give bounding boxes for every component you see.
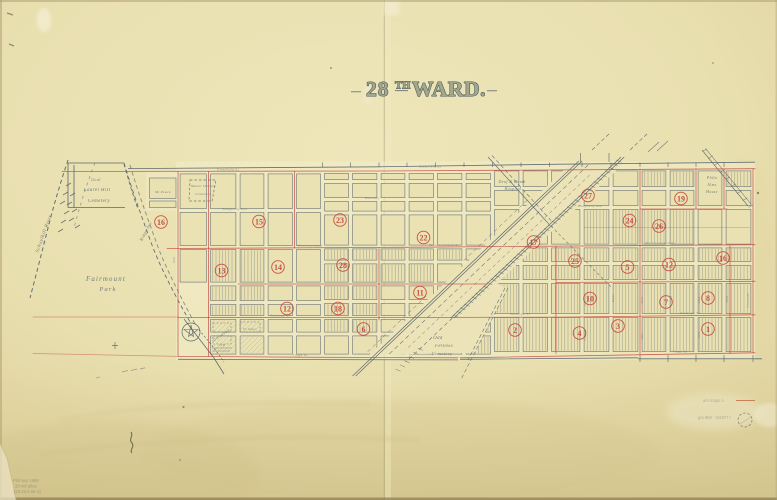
svg-text:Clearfield St: Clearfield St <box>217 168 239 172</box>
svg-text:am maps o: am maps o <box>703 398 724 403</box>
svg-text:Venango St: Venango St <box>510 312 530 316</box>
svg-text:19: 19 <box>677 194 685 203</box>
svg-text:Phil twp 1888: Phil twp 1888 <box>13 478 39 483</box>
svg-text:TH: TH <box>395 81 411 92</box>
svg-text:Fellows: Fellows <box>434 344 453 349</box>
svg-text:15th: 15th <box>725 295 729 302</box>
svg-text:14: 14 <box>274 263 282 272</box>
svg-text:Garnet: Garnet <box>583 329 587 340</box>
svg-text:Allegheny Ave: Allegheny Ave <box>223 207 248 211</box>
svg-text:1: 1 <box>706 325 710 334</box>
svg-text:Cemetery: Cemetery <box>432 351 453 356</box>
svg-text:Garnet: Garnet <box>583 294 587 305</box>
svg-text:16th: 16th <box>697 331 701 338</box>
svg-text:gm 860 - m2877 l: gm 860 - m2877 l <box>698 415 731 420</box>
svg-text:Alms: Alms <box>706 183 716 187</box>
svg-text:17: 17 <box>530 238 538 247</box>
svg-text:10: 10 <box>586 294 594 303</box>
svg-text:Allegheny Ave: Allegheny Ave <box>578 204 603 208</box>
svg-text:Colorado: Colorado <box>746 293 750 308</box>
svg-text:Mt Peace: Mt Peace <box>154 190 171 194</box>
svg-text:Mount Vernon: Mount Vernon <box>190 184 215 188</box>
svg-text:Westmoreland: Westmoreland <box>298 244 323 248</box>
svg-text:[28.28.9.88-4]: [28.28.9.88-4] <box>14 489 41 494</box>
svg-text:18th: 18th <box>640 332 644 339</box>
svg-text:Hospital: Hospital <box>504 186 522 191</box>
svg-text:Westmoreland St: Westmoreland St <box>429 243 459 247</box>
svg-text:27: 27 <box>584 191 592 200</box>
svg-text:St James: St James <box>243 327 257 331</box>
svg-text:26: 26 <box>655 222 663 231</box>
svg-text:28: 28 <box>366 77 390 101</box>
svg-text:Wensley: Wensley <box>365 196 380 200</box>
svg-text:7: 7 <box>664 298 668 307</box>
svg-text:Deaf & Dumb: Deaf & Dumb <box>497 179 525 184</box>
svg-text:Cemetery: Cemetery <box>195 192 211 196</box>
svg-text:12: 12 <box>665 260 673 269</box>
svg-text:17th: 17th <box>669 295 673 302</box>
svg-text:Fairmount: Fairmount <box>85 276 126 283</box>
svg-text:Laurel Hill: Laurel Hill <box>83 188 111 193</box>
svg-text:12: 12 <box>283 304 291 313</box>
svg-text:House: House <box>705 190 718 194</box>
svg-text:Tioga St: Tioga St <box>293 353 308 357</box>
svg-text:Genl: Genl <box>91 177 101 182</box>
svg-text:Opal: Opal <box>611 294 615 302</box>
svg-text:Venango St: Venango St <box>270 314 290 318</box>
svg-text:5: 5 <box>626 263 630 272</box>
svg-text:3: 3 <box>616 322 620 331</box>
svg-text:Cemetery: Cemetery <box>88 199 111 204</box>
svg-text:22: 22 <box>420 233 428 242</box>
svg-text:Park: Park <box>98 286 116 293</box>
svg-text:24: 24 <box>626 216 634 225</box>
svg-text:11: 11 <box>416 288 424 297</box>
svg-text:Odd: Odd <box>433 336 443 341</box>
svg-text:Westmoreland St: Westmoreland St <box>645 241 675 245</box>
svg-text:28: 28 <box>339 261 347 270</box>
svg-text:16th: 16th <box>697 296 701 303</box>
svg-text:15: 15 <box>255 217 263 226</box>
svg-text:WARD.: WARD. <box>412 77 486 101</box>
svg-text:18th: 18th <box>640 296 644 303</box>
svg-text:23: 23 <box>336 216 344 225</box>
svg-text:8: 8 <box>706 294 710 303</box>
svg-text:Tioga St: Tioga St <box>673 350 688 354</box>
svg-text:28 wd atlas: 28 wd atlas <box>15 484 37 489</box>
svg-text:Phila: Phila <box>706 176 717 180</box>
svg-text:25: 25 <box>571 257 579 266</box>
svg-text:Venango St: Venango St <box>680 311 700 315</box>
svg-text:2: 2 <box>513 326 517 335</box>
svg-text:22d: 22d <box>172 257 176 263</box>
svg-text:Cem: Cem <box>219 343 226 347</box>
svg-text:Clearfield St: Clearfield St <box>419 165 441 169</box>
svg-text:16: 16 <box>719 254 727 263</box>
svg-text:6: 6 <box>362 325 366 334</box>
svg-text:16: 16 <box>157 218 165 227</box>
svg-text:18: 18 <box>334 304 342 313</box>
svg-text:13: 13 <box>218 266 226 275</box>
svg-text:4: 4 <box>578 329 582 338</box>
